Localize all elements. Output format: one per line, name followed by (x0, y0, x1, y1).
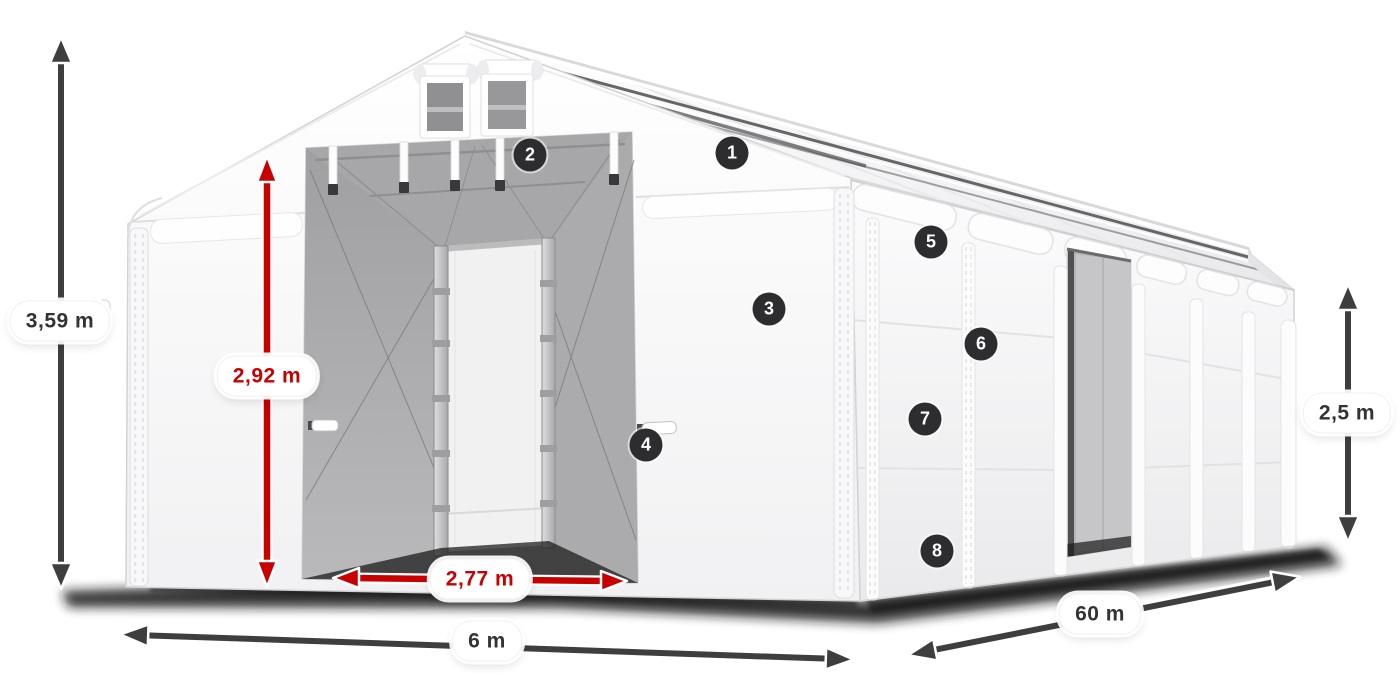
callout-2: 2 (514, 139, 547, 172)
callout-1: 1 (716, 137, 749, 170)
tent-illustration (0, 0, 1400, 700)
dimension-entrance-height-label: 2,92 m (217, 356, 317, 397)
dimension-total-height-label: 3,59 m (10, 301, 110, 342)
callout-4: 4 (630, 429, 663, 462)
callout-7: 7 (909, 403, 942, 436)
dimension-length-label: 60 m (1059, 594, 1141, 635)
see-through-opening (441, 240, 549, 552)
dimension-side-height-label: 2,5 m (1303, 393, 1391, 434)
side-doorway (1067, 249, 1131, 557)
tent-dimension-diagram: 3,59 m 2,92 m 2,77 m 6 m 60 m 2,5 m 1 2 … (0, 0, 1400, 700)
dimension-entrance-width-label: 2,77 m (430, 559, 530, 600)
front-doorway (302, 132, 677, 583)
sliding-door-pole (1068, 250, 1074, 556)
callout-3: 3 (753, 293, 786, 326)
callout-8: 8 (921, 535, 954, 568)
dimension-width-label: 6 m (452, 621, 522, 662)
callout-5: 5 (915, 226, 948, 259)
callout-6: 6 (965, 328, 998, 361)
